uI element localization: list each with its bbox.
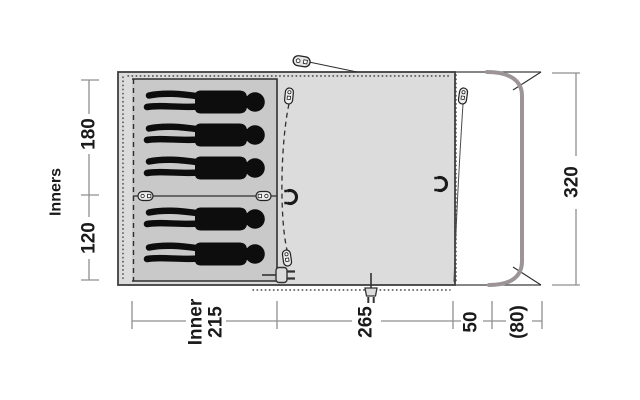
dimension-265-label: 265 xyxy=(356,306,377,338)
guy-line-peg-icon xyxy=(292,55,357,72)
dimension-bottom: Inner 215 265 50 (80) xyxy=(132,298,542,345)
dimension-right: 320 xyxy=(552,73,583,285)
zipper-pull-front-door-icon xyxy=(458,88,468,105)
zipper-pull-divider-right-icon xyxy=(256,192,271,201)
dimension-215-label: 215 xyxy=(206,306,227,338)
zipper-pull-divider-left-icon xyxy=(138,192,153,201)
dimension-320-label: 320 xyxy=(562,166,583,198)
dimension-inner-label: Inner xyxy=(186,298,207,345)
dimension-80-label: (80) xyxy=(508,305,529,339)
dimension-120-label: 120 xyxy=(79,222,100,254)
floorplan-svg: 180 120 Inners 320 Inner 215 265 50 (80) xyxy=(0,0,640,400)
canopy-tension-lines xyxy=(513,72,541,285)
canopy-pole xyxy=(487,72,522,285)
dimension-180-label: 180 xyxy=(79,118,100,150)
dimension-50-label: 50 xyxy=(461,311,482,332)
zipper-pull-inner-bottom-icon xyxy=(282,250,292,267)
inners-label: Inners xyxy=(48,168,65,216)
dimension-left: 180 120 Inners xyxy=(48,80,100,280)
tent-floorplan-diagram: 180 120 Inners 320 Inner 215 265 50 (80) xyxy=(0,0,640,400)
zipper-pull-inner-top-icon xyxy=(284,88,294,105)
canopy-edge-lines xyxy=(455,72,541,285)
